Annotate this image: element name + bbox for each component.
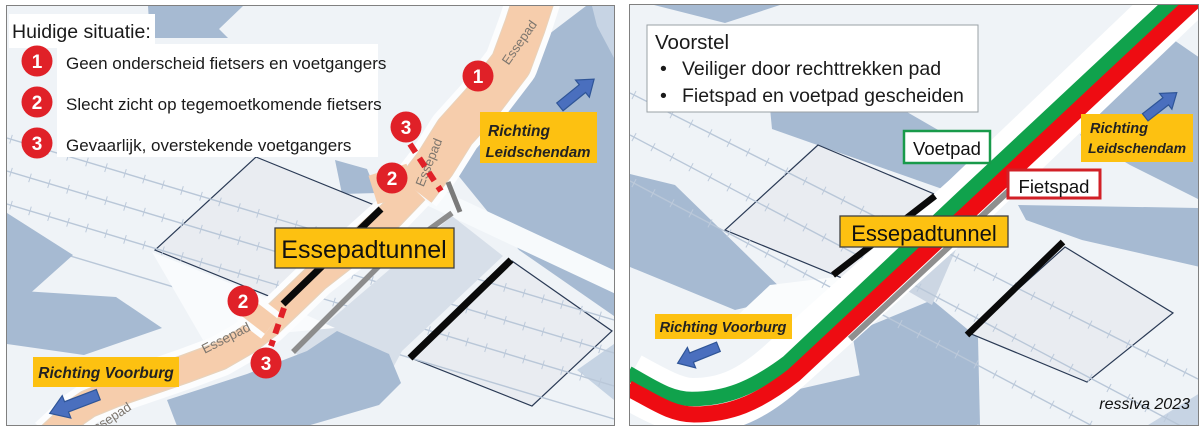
- svg-text:•: •: [660, 58, 667, 80]
- svg-text:Veiliger door rechttrekken pad: Veiliger door rechttrekken pad: [682, 58, 941, 80]
- svg-text:Fietspad en voetpad gescheiden: Fietspad en voetpad gescheiden: [682, 85, 964, 107]
- svg-text:Huidige situatie:: Huidige situatie:: [12, 21, 151, 43]
- svg-text:Richting: Richting: [1090, 121, 1148, 137]
- svg-text:3: 3: [32, 134, 43, 155]
- svg-text:Essepadtunnel: Essepadtunnel: [281, 236, 446, 264]
- svg-text:Richting Voorburg: Richting Voorburg: [38, 365, 174, 382]
- svg-text:3: 3: [401, 118, 412, 139]
- svg-text:Leidschendam: Leidschendam: [485, 144, 590, 161]
- svg-text:ressiva 2023: ressiva 2023: [1099, 396, 1190, 413]
- svg-text:Fietspad: Fietspad: [1019, 176, 1090, 197]
- svg-text:Leidschendam: Leidschendam: [1088, 140, 1186, 156]
- svg-text:Gevaarlijk, overstekende voetg: Gevaarlijk, overstekende voetgangers: [66, 136, 351, 155]
- svg-text:Slecht zicht op tegemoetkomend: Slecht zicht op tegemoetkomende fietsers: [66, 95, 382, 114]
- svg-text:Voorstel: Voorstel: [655, 31, 729, 54]
- svg-text:1: 1: [473, 67, 484, 88]
- svg-text:Richting Voorburg: Richting Voorburg: [660, 320, 787, 336]
- svg-text:Voetpad: Voetpad: [913, 138, 981, 159]
- svg-text:2: 2: [387, 169, 398, 190]
- svg-text:Geen onderscheid fietsers en v: Geen onderscheid fietsers en voetgangers: [66, 54, 386, 73]
- svg-text:Richting: Richting: [488, 123, 551, 140]
- svg-text:1: 1: [32, 52, 43, 73]
- svg-text:Essepadtunnel: Essepadtunnel: [851, 221, 997, 246]
- svg-text:•: •: [660, 85, 667, 107]
- svg-text:2: 2: [32, 93, 43, 114]
- svg-text:2: 2: [238, 292, 249, 313]
- svg-text:3: 3: [261, 354, 272, 375]
